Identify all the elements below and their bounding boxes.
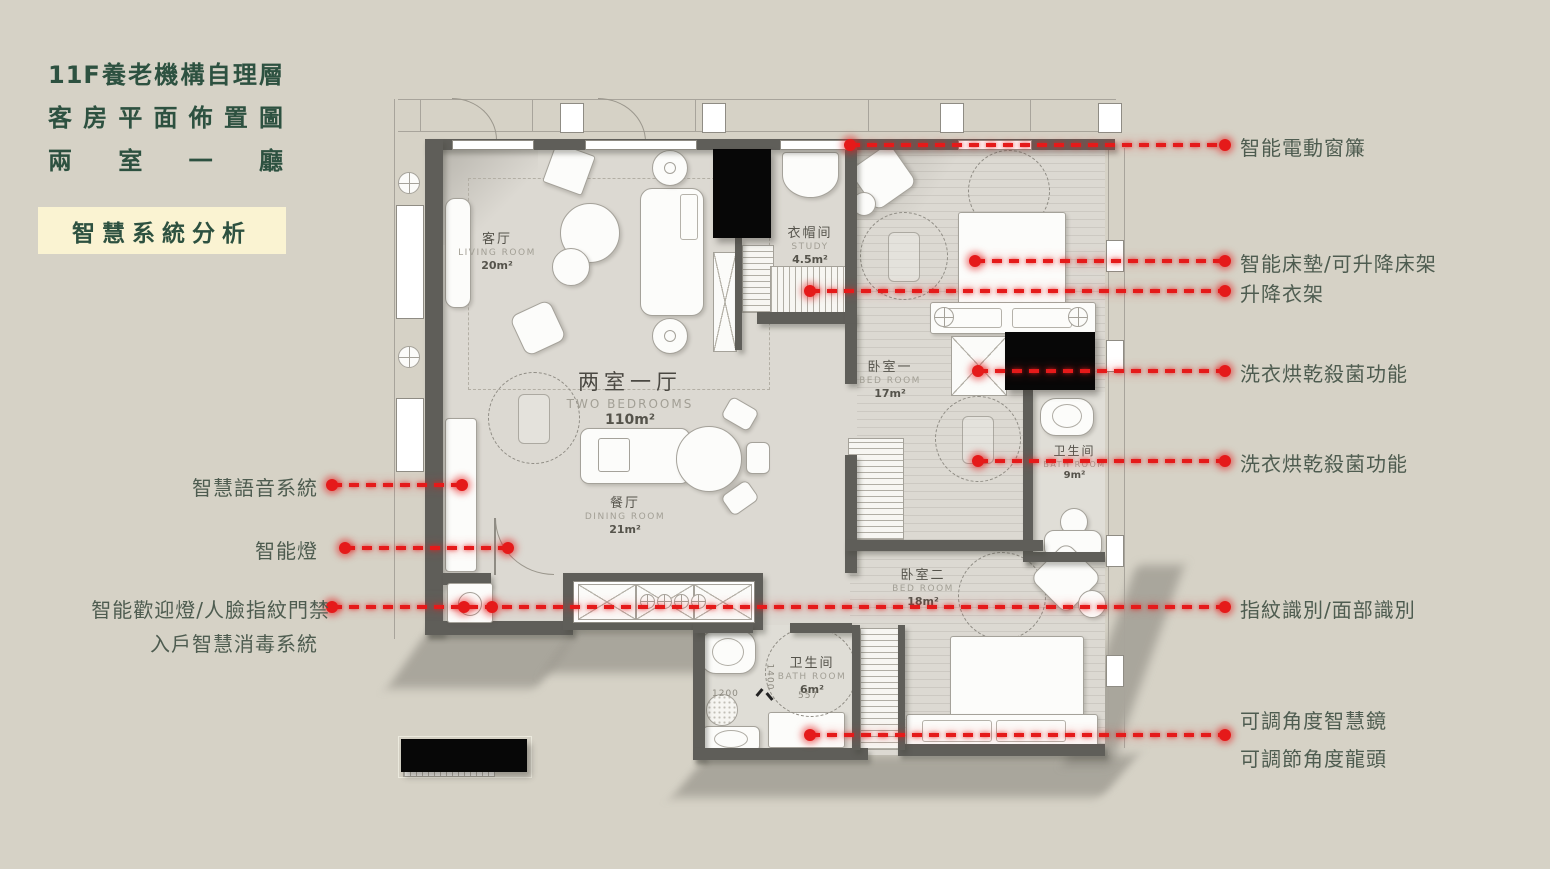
- balcony-line: [398, 131, 1116, 132]
- leader-dot: [456, 479, 468, 491]
- wall-left: [425, 139, 443, 591]
- wall-detail: [1106, 340, 1124, 372]
- wall: [845, 540, 1043, 551]
- dimension-1400: 1400: [764, 664, 774, 691]
- unit-name: 两室一厅: [550, 366, 710, 396]
- leader-dot: [972, 365, 984, 377]
- left-fixture: [396, 205, 424, 319]
- annotation-fingerprint: 指紋識別/面部識別: [1240, 594, 1416, 623]
- room-label-dining: 餐厅 DINING ROOM 21m²: [565, 492, 685, 536]
- leader-dot: [804, 729, 816, 741]
- unit-label: 两室一厅 TWO BEDROOMS 110m²: [550, 366, 710, 428]
- wall: [693, 623, 705, 760]
- room-name: 客厅: [437, 228, 557, 247]
- ceiling-symbol: [398, 172, 420, 194]
- wall: [898, 625, 905, 750]
- side-table: [1078, 590, 1106, 618]
- room-name: 卧室一: [830, 356, 950, 375]
- room-area: 4.5m²: [750, 253, 870, 266]
- balcony-tick: [420, 100, 421, 132]
- fan-hub: [664, 162, 676, 174]
- balcony-column: [702, 103, 726, 133]
- annotation-smart-light: 智能燈: [30, 535, 318, 564]
- nightstand: [934, 307, 954, 327]
- door-swing-arc: [452, 98, 497, 140]
- leader-dot: [969, 255, 981, 267]
- toilet-bowl: [1052, 404, 1082, 428]
- pillow: [996, 720, 1066, 742]
- shadow: [388, 630, 579, 688]
- wall: [693, 748, 868, 760]
- window: [780, 140, 852, 150]
- bed-2: [950, 636, 1084, 720]
- washer-black-unit: [1005, 332, 1095, 390]
- leader-line-washer1: [978, 369, 1225, 373]
- wall: [693, 623, 753, 633]
- leader-line-mattress: [975, 259, 1225, 263]
- room-area: 20m²: [437, 259, 557, 272]
- dimension-557: 557: [798, 691, 818, 701]
- wall: [1023, 552, 1105, 562]
- analysis-badge: 智慧系統分析: [38, 207, 286, 254]
- room-label-bedroom2: 卧室二 BED ROOM 18m²: [863, 564, 983, 608]
- leader-dot: [1219, 139, 1231, 151]
- annotation-hanger: 升降衣架: [1240, 278, 1324, 307]
- title-line-3: 兩室一廳: [48, 140, 284, 183]
- room-name-en: BED ROOM: [830, 376, 950, 386]
- leader-line-voice: [332, 483, 462, 487]
- annotation-curtain: 智能電動窗簾: [1240, 132, 1366, 161]
- leader-dot: [844, 139, 856, 151]
- nightstand: [1068, 307, 1088, 327]
- coffee-table-small: [552, 248, 590, 286]
- leader-dot: [326, 479, 338, 491]
- wheelchair: [888, 232, 920, 282]
- annotation-smart-mirror: 可調角度智慧鏡: [1240, 705, 1387, 734]
- room-label-bedroom1: 卧室一 BED ROOM 17m²: [830, 356, 950, 400]
- window: [585, 140, 697, 150]
- room-label-living: 客厅 LIVING ROOM 20m²: [437, 228, 557, 272]
- leader-line-mirror: [810, 733, 1225, 737]
- sofa-armrest: [680, 194, 698, 240]
- leader-dot: [1219, 255, 1231, 267]
- room-name: 衣帽间: [750, 222, 870, 241]
- ceiling-symbol: [398, 346, 420, 368]
- closet-unit: [578, 584, 636, 620]
- room-area: 21m²: [565, 523, 685, 536]
- basin: [714, 730, 748, 748]
- balcony-column: [1098, 103, 1122, 133]
- unit-name-en: TWO BEDROOMS: [550, 397, 710, 411]
- wall-detail: [1106, 535, 1124, 567]
- window: [452, 140, 534, 150]
- toilet-bowl: [712, 638, 744, 666]
- leader-dot: [1219, 729, 1231, 741]
- room-label-wardrobe: 衣帽间 STUDY 4.5m²: [750, 222, 870, 266]
- dimension-1200: 1200: [712, 689, 739, 699]
- annotation-mattress: 智能床墊/可升降床架: [1240, 248, 1437, 277]
- left-fixture: [396, 398, 424, 472]
- leader-dot: [1219, 365, 1231, 377]
- tall-cabinet: [713, 252, 737, 352]
- leader-line-curtain: [850, 143, 1225, 147]
- wall-bottom: [898, 744, 1105, 756]
- leader-line-washer2: [978, 459, 1225, 463]
- balcony-column: [940, 103, 964, 133]
- unit-area: 110m²: [550, 412, 710, 428]
- balcony-tick: [532, 100, 533, 132]
- wall: [845, 455, 857, 573]
- room-name: 餐厅: [565, 492, 685, 511]
- wall-entry-bottom: [425, 621, 573, 635]
- wall: [735, 238, 742, 350]
- leader-dot: [972, 455, 984, 467]
- washbasin: [782, 152, 839, 198]
- balcony-tick: [1030, 100, 1031, 132]
- leader-dot: [486, 601, 498, 613]
- annotation-voice-system: 智慧語音系統: [30, 472, 318, 501]
- title-line-2: 客房平面佈置圖: [48, 97, 284, 140]
- room-area: 9m²: [1022, 470, 1127, 481]
- dining-chair: [746, 442, 770, 474]
- slide: 11F養老機構自理層 客房平面佈置圖 兩室一廳 智慧系統分析: [0, 0, 1550, 869]
- fan-hub: [664, 330, 676, 342]
- annotation-faucet: 可調節角度龍頭: [1240, 743, 1387, 772]
- dining-table: [676, 426, 742, 492]
- room-name-en: DINING ROOM: [565, 512, 685, 522]
- annotation-washer1: 洗衣烘乾殺菌功能: [1240, 358, 1408, 387]
- balcony-line: [394, 99, 395, 639]
- leader-dot: [502, 542, 514, 554]
- annotation-washer2: 洗衣烘乾殺菌功能: [1240, 448, 1408, 477]
- room-name-en: BED ROOM: [863, 584, 983, 594]
- leader-line-light: [345, 546, 508, 550]
- redaction-black-bar: [401, 739, 527, 772]
- wall-detail: [1106, 655, 1124, 687]
- room-name: 卫生间: [1022, 442, 1127, 459]
- annotation-disinfection-system: 入戶智慧消毒系統: [30, 628, 318, 657]
- island-sink: [598, 438, 630, 472]
- wall: [790, 623, 852, 633]
- room-area: 17m²: [830, 387, 950, 400]
- slide-title: 11F養老機構自理層 客房平面佈置圖 兩室一廳: [48, 54, 284, 183]
- kitchen-island: [580, 428, 690, 484]
- leader-dot: [1219, 601, 1231, 613]
- title-line-1: 11F養老機構自理層: [48, 54, 284, 97]
- annotation-welcome-light-access: 智能歡迎燈/人臉指紋門禁: [30, 594, 330, 623]
- leader-dot: [458, 601, 470, 613]
- room-name: 卧室二: [863, 564, 983, 583]
- leader-dot: [339, 542, 351, 554]
- leader-dot: [1219, 455, 1231, 467]
- door-swing-arc: [598, 98, 646, 142]
- leader-dot: [1219, 285, 1231, 297]
- wheelchair: [518, 394, 550, 444]
- leader-line-hanger: [810, 289, 1225, 293]
- wall-detail: [1106, 240, 1124, 272]
- balcony-tick: [695, 100, 696, 132]
- room-name-en: LIVING ROOM: [437, 248, 557, 258]
- pillow: [922, 720, 992, 742]
- room-name-en: STUDY: [750, 242, 870, 252]
- pillow: [1012, 308, 1072, 328]
- wall: [757, 312, 855, 324]
- balcony-line: [398, 99, 1116, 100]
- leader-dot: [804, 285, 816, 297]
- balcony-column: [560, 103, 584, 133]
- balcony-tick: [868, 100, 869, 132]
